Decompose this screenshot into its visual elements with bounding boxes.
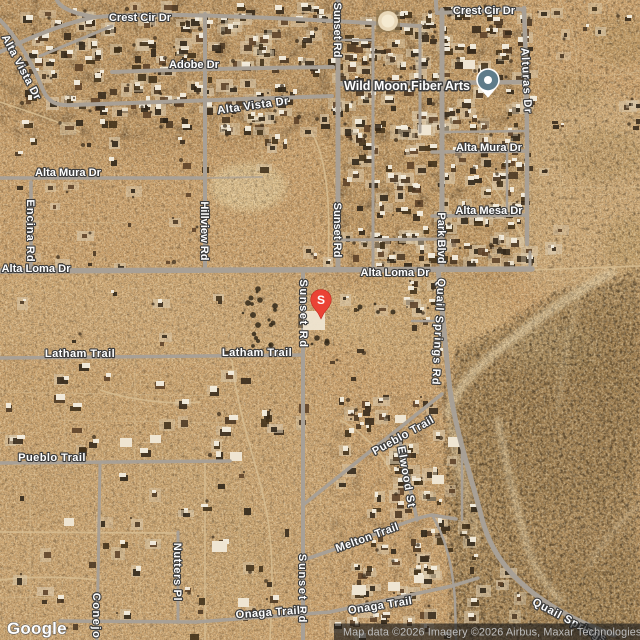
svg-text:Alta Loma Dr: Alta Loma Dr — [1, 263, 71, 275]
svg-text:Map data ©2026 Imagery ©2026 A: Map data ©2026 Imagery ©2026 Airbus, Max… — [343, 627, 640, 639]
svg-text:Alta Mesa Dr: Alta Mesa Dr — [455, 205, 523, 217]
svg-text:Hillview Rd: Hillview Rd — [198, 201, 210, 260]
svg-text:Alta Mura Dr: Alta Mura Dr — [456, 142, 523, 154]
svg-text:S: S — [317, 293, 325, 307]
svg-text:Alta Mura Dr: Alta Mura Dr — [35, 167, 102, 179]
svg-text:Nutters Pl: Nutters Pl — [171, 543, 183, 601]
svg-text:Sunset Rd: Sunset Rd — [331, 3, 343, 58]
svg-text:Pueblo Trail: Pueblo Trail — [18, 452, 86, 464]
svg-text:Latham Trail: Latham Trail — [45, 348, 115, 360]
svg-text:Encina Rd: Encina Rd — [24, 199, 36, 262]
svg-text:Google: Google — [7, 619, 67, 638]
svg-text:Latham Trail: Latham Trail — [222, 347, 292, 359]
svg-text:Sunset Rd: Sunset Rd — [331, 203, 343, 258]
svg-text:Sunset Rd: Sunset Rd — [297, 279, 309, 348]
svg-text:Wild Moon Fiber Arts: Wild Moon Fiber Arts — [344, 79, 470, 93]
svg-text:Adobe Dr: Adobe Dr — [169, 59, 220, 71]
svg-text:Crest Cir Dr: Crest Cir Dr — [453, 5, 516, 17]
svg-text:Alta Loma Dr: Alta Loma Dr — [360, 267, 430, 279]
svg-text:Conejo: Conejo — [90, 593, 102, 640]
svg-text:Crest Cir Dr: Crest Cir Dr — [109, 12, 172, 24]
svg-text:Park Blvd: Park Blvd — [435, 212, 447, 263]
